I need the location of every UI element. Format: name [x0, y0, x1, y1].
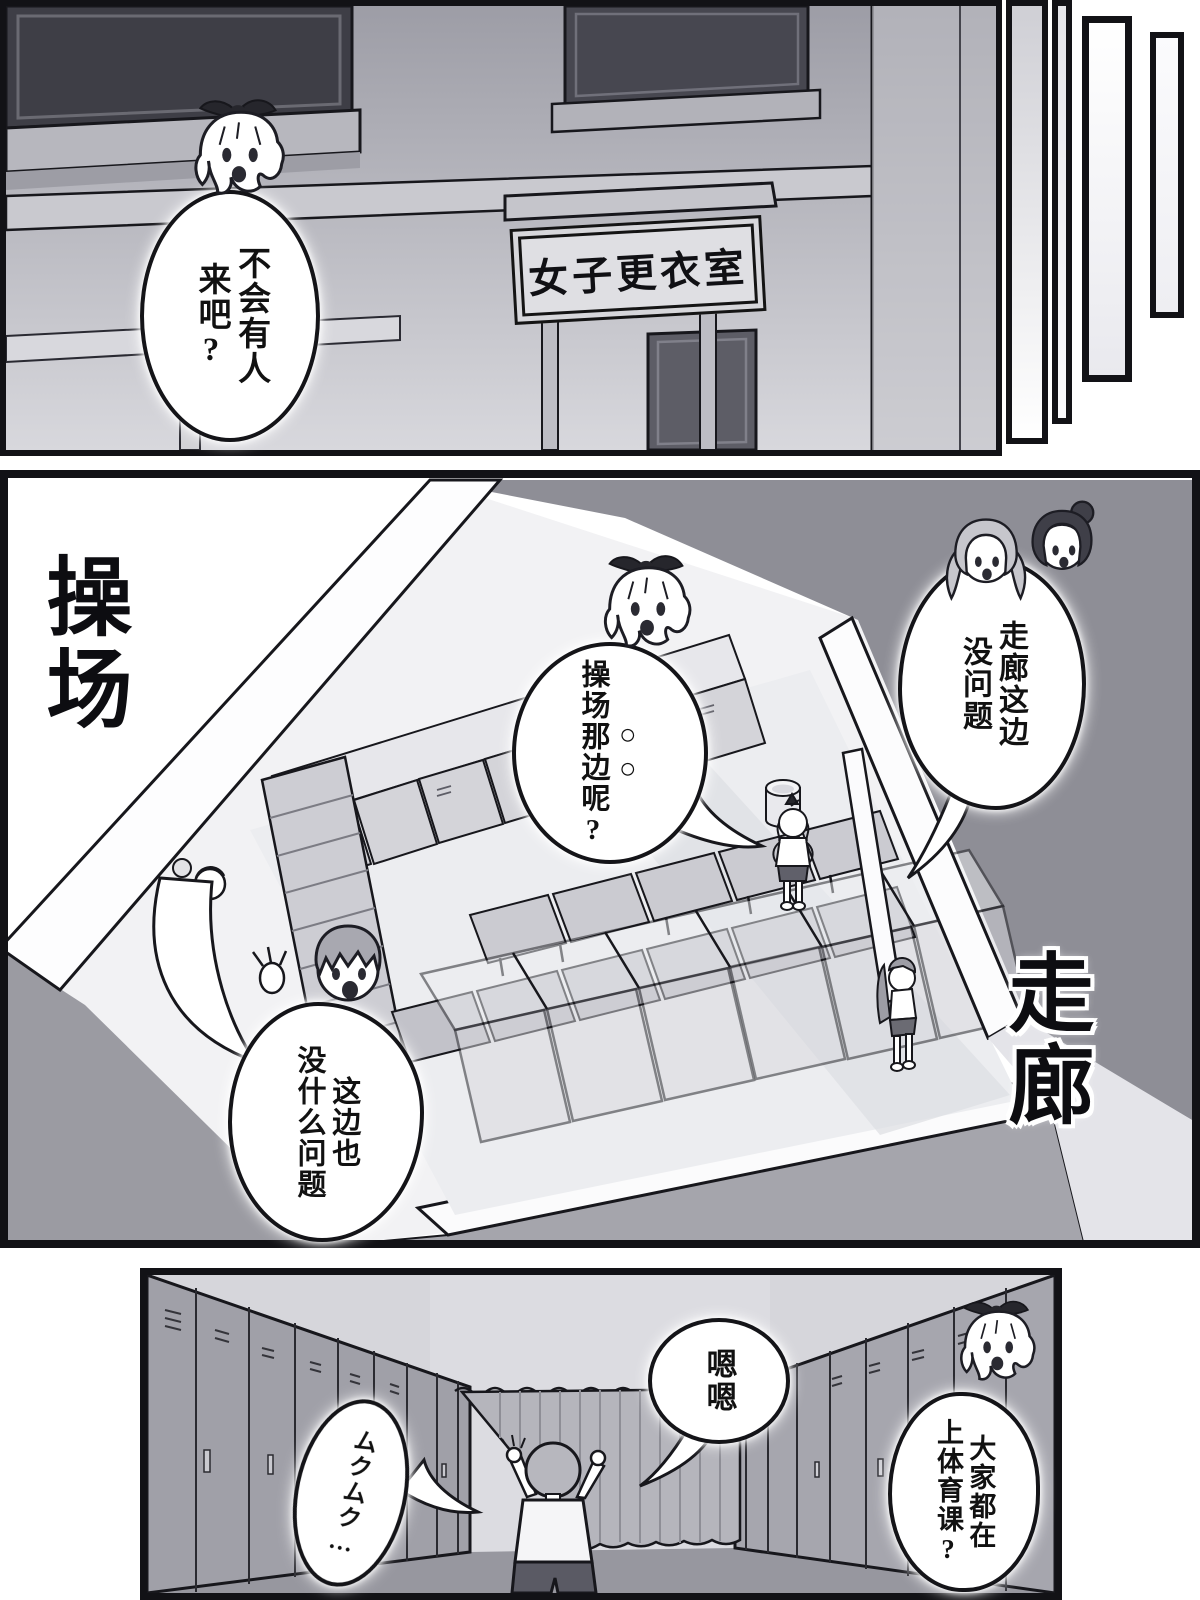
edge-slat-3 [1082, 16, 1132, 382]
sign-text: 女子更衣室 [527, 235, 750, 305]
edge-slat-4 [1150, 32, 1184, 318]
speech-bubble-playground: ○○ 操场那边呢? [512, 642, 708, 864]
boy-head [292, 908, 402, 1018]
label-playground: 操场 [38, 552, 124, 736]
window-upper-middle [552, 6, 820, 132]
speech-bubble-no-one: 不会有人 来吧? [140, 190, 320, 442]
edge-slat-1 [1006, 0, 1048, 444]
girl-bun-head [1016, 498, 1108, 590]
right-wall-face [872, 6, 996, 450]
speech-text-hallway-ok: 走廊这边 没问题 [956, 620, 1028, 748]
speech-text-this-side-ok: 这边也 没什么问题 [291, 1045, 361, 1200]
speech-text-pe-class: 大家都在 上体育课? [932, 1418, 997, 1566]
changing-room-sign: 女子更衣室 [510, 215, 767, 325]
speech-text-no-one: 不会有人 来吧? [190, 246, 269, 386]
label-hallway: 走廊 [1000, 948, 1086, 1132]
speech-text-playground: ○○ 操场那边呢? [575, 659, 645, 848]
girl-ribbon-head-middle [590, 552, 708, 670]
girl-ribbon-head [180, 96, 302, 218]
speech-text-hum: 嗯嗯 [700, 1348, 737, 1414]
sign-inner-frame: 女子更衣室 [518, 223, 758, 316]
edge-slat-2 [1052, 0, 1072, 424]
sfx-text-mukumuku: ムクムク… [323, 1425, 379, 1560]
speech-bubble-hum: 嗯嗯 [648, 1318, 790, 1444]
girl-ribbon-head-bottom [948, 1298, 1050, 1400]
speech-bubble-pe-class: 大家都在 上体育课? [888, 1392, 1040, 1592]
manga-page: 女子更衣室 不会有人 来吧? [0, 0, 1200, 1600]
